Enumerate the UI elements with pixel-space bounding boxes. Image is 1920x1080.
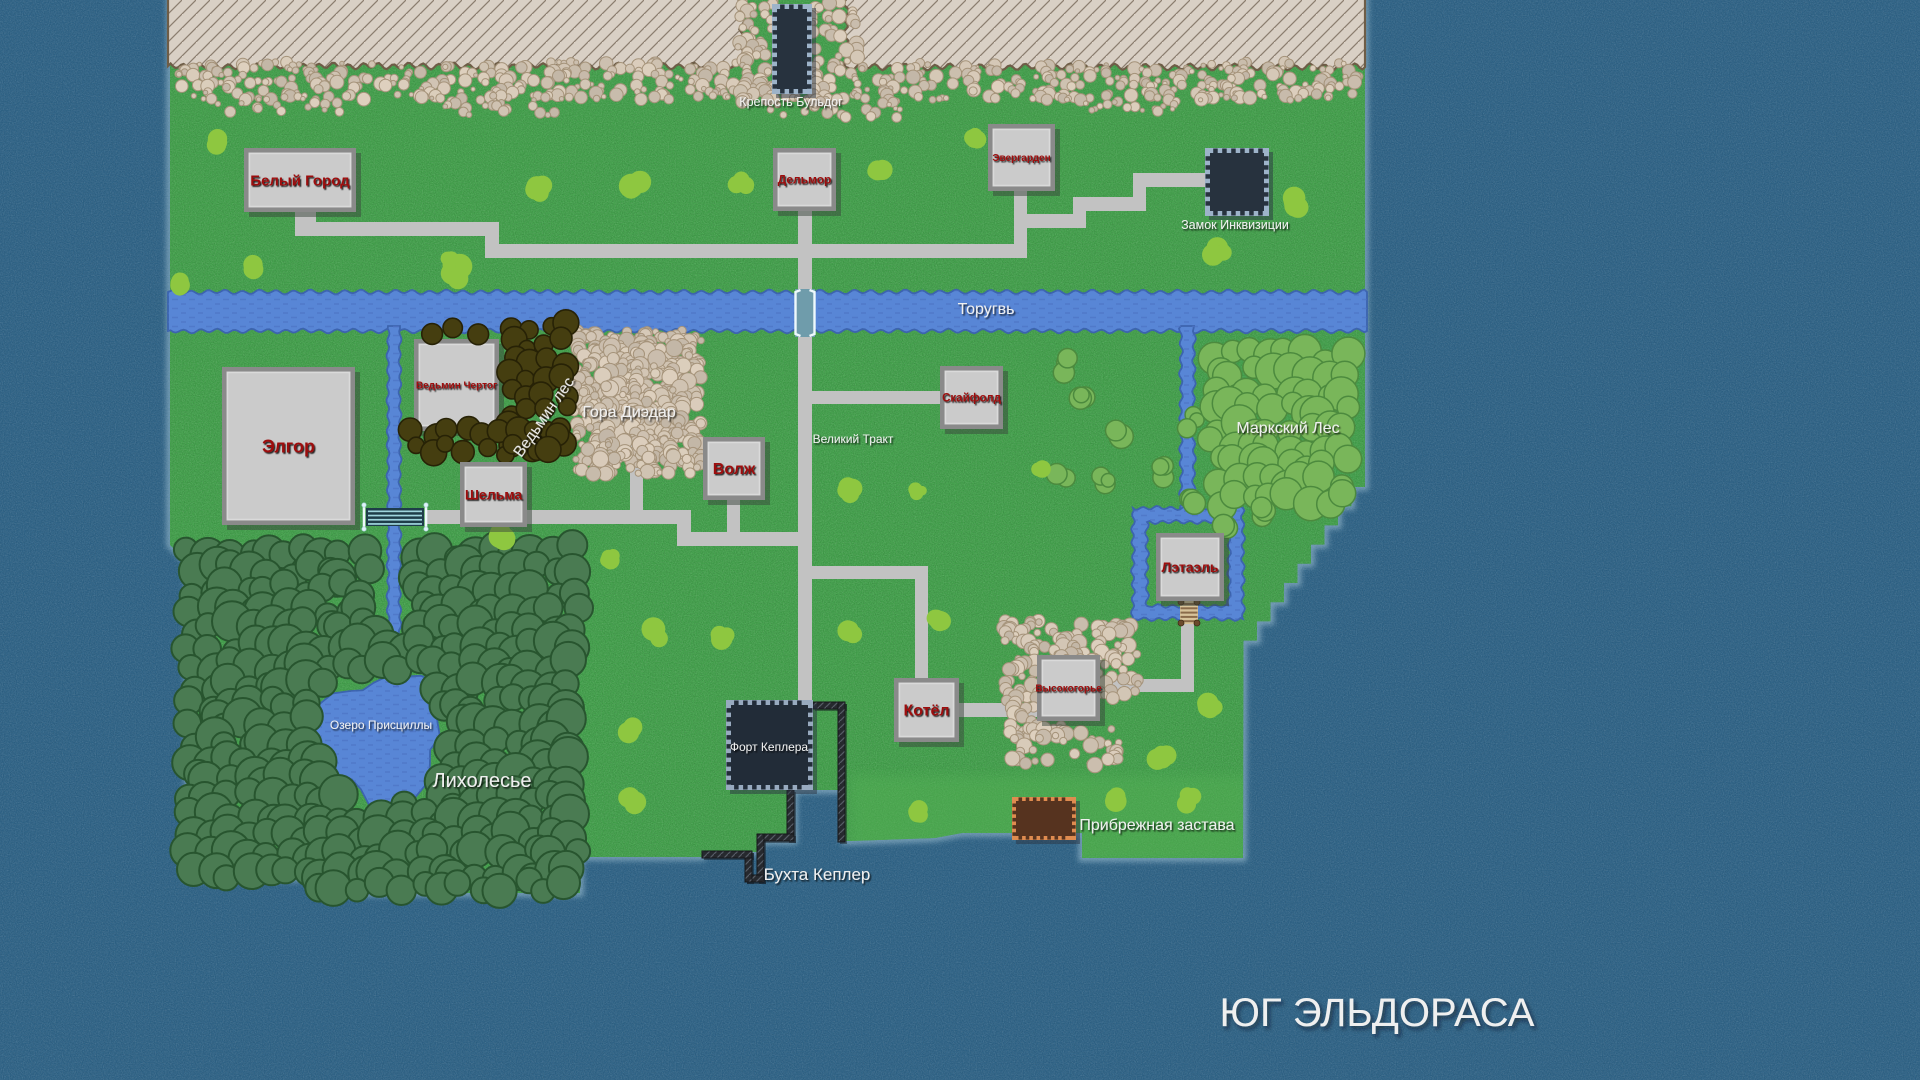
svg-text:Ведьмин Чертог: Ведьмин Чертог bbox=[416, 381, 497, 392]
svg-text:Лэтаэль: Лэтаэль bbox=[1162, 559, 1219, 575]
svg-text:Волж: Волж bbox=[713, 461, 756, 478]
svg-text:Котёл: Котёл bbox=[903, 703, 949, 720]
svg-text:Форт Кеплера: Форт Кеплера bbox=[730, 740, 809, 754]
svg-text:Высокогорье: Высокогорье bbox=[1035, 684, 1102, 695]
svg-text:Дельмор: Дельмор bbox=[778, 173, 832, 187]
svg-text:Белый Город: Белый Город bbox=[250, 172, 350, 189]
svg-text:Лихолесье: Лихолесье bbox=[432, 770, 531, 792]
svg-text:Бухта Кеплер: Бухта Кеплер bbox=[764, 865, 871, 884]
svg-text:Прибрежная застава: Прибрежная застава bbox=[1079, 817, 1234, 834]
svg-text:ЮГ ЭЛЬДОРАСА: ЮГ ЭЛЬДОРАСА bbox=[1220, 991, 1535, 1035]
svg-text:Озеро Присциллы: Озеро Присциллы bbox=[330, 718, 432, 732]
svg-text:Элгор: Элгор bbox=[262, 436, 315, 456]
svg-text:Маркский Лес: Маркский Лес bbox=[1236, 420, 1339, 437]
svg-text:Шельма: Шельма bbox=[465, 486, 523, 502]
svg-text:Гора Диэдар: Гора Диэдар bbox=[582, 404, 676, 421]
svg-text:Крепость Бульдог: Крепость Бульдог bbox=[739, 95, 843, 109]
svg-text:Скайфолд: Скайфолд bbox=[942, 393, 1001, 405]
svg-text:Замок Инквизиции: Замок Инквизиции bbox=[1181, 218, 1289, 232]
svg-text:Торугвь: Торугвь bbox=[958, 301, 1015, 318]
svg-text:Великий Тракт: Великий Тракт bbox=[813, 432, 894, 446]
svg-text:Эвергарден: Эвергарден bbox=[992, 153, 1050, 164]
